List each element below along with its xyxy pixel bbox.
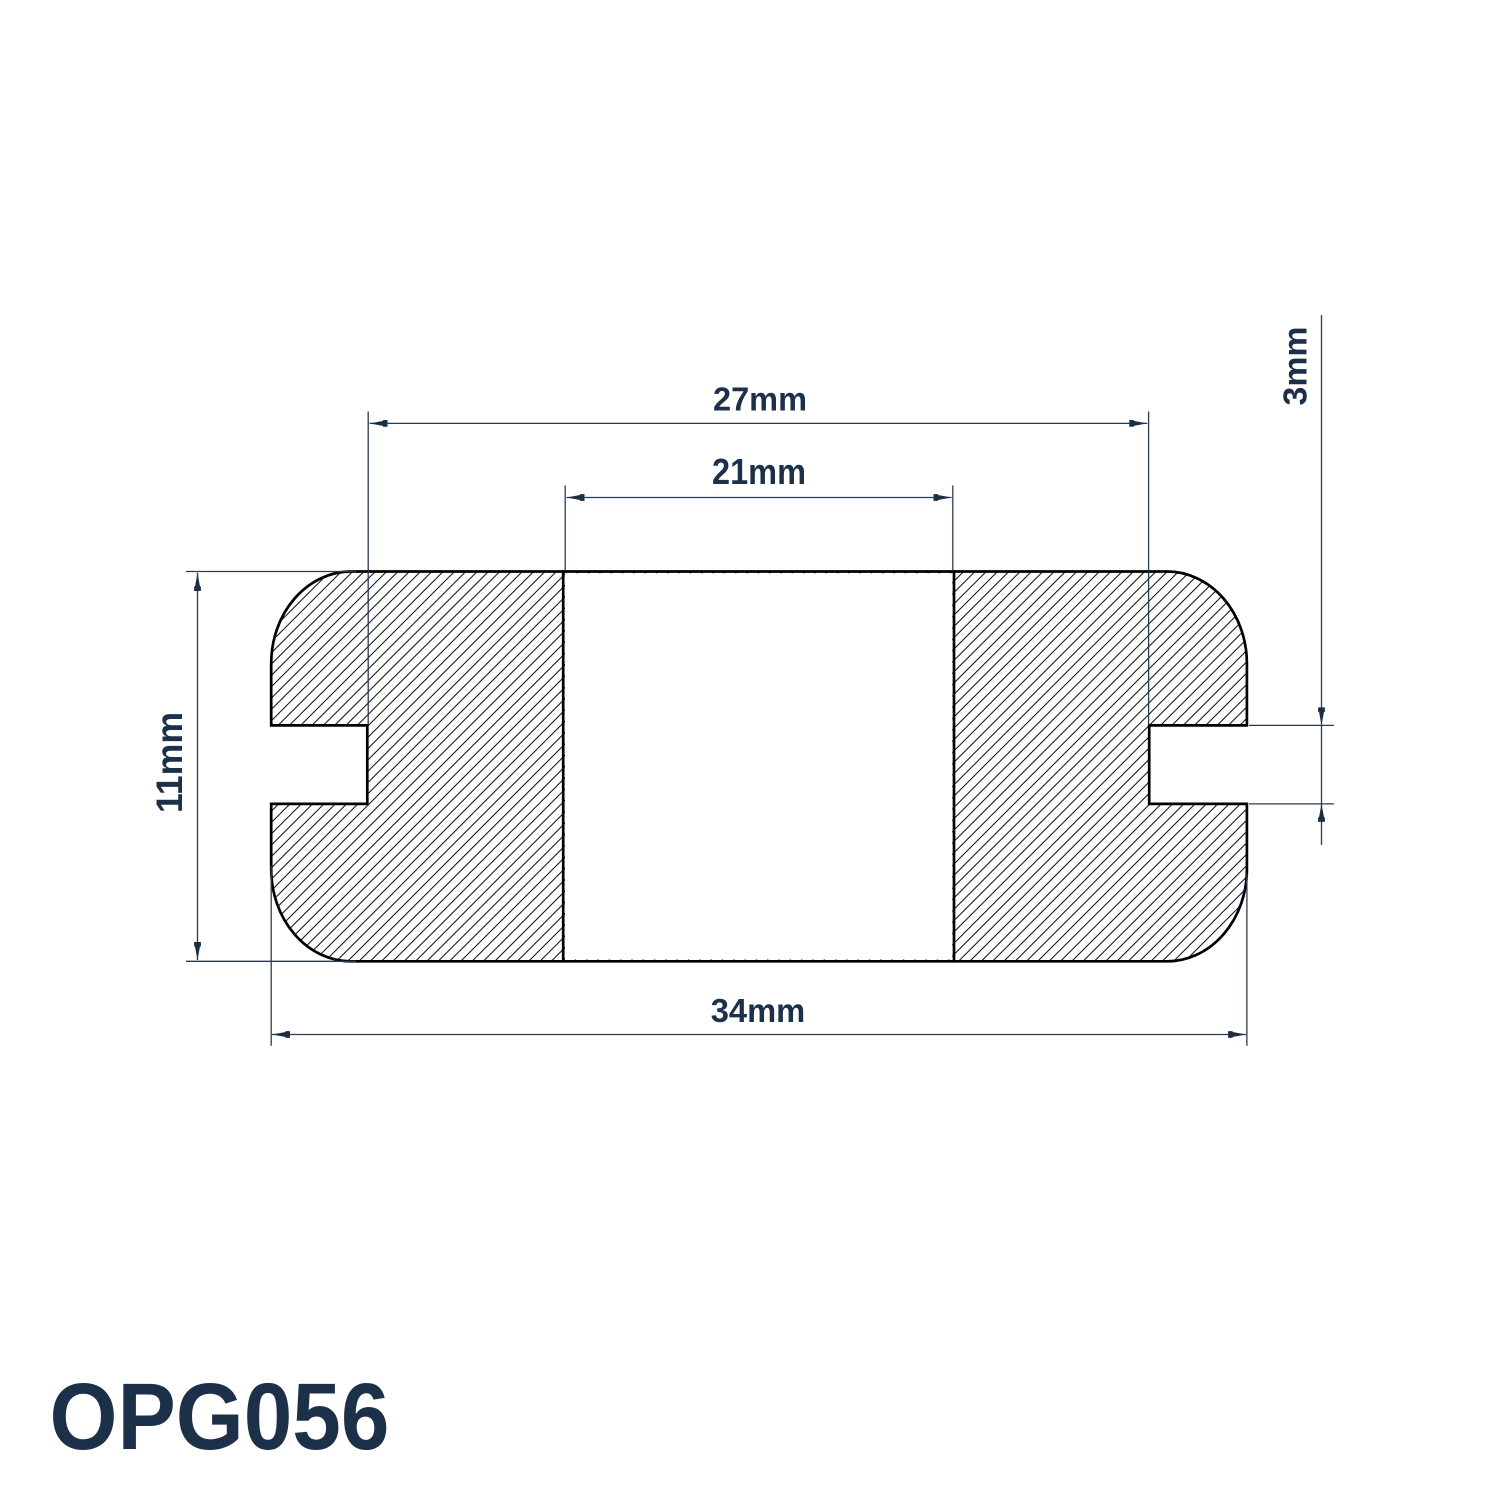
svg-text:21mm: 21mm xyxy=(712,451,806,492)
svg-text:OPG056: OPG056 xyxy=(50,1364,390,1470)
svg-text:11mm: 11mm xyxy=(149,712,190,813)
svg-text:27mm: 27mm xyxy=(713,381,807,418)
svg-text:3mm: 3mm xyxy=(1277,327,1314,406)
svg-text:34mm: 34mm xyxy=(711,992,806,1029)
